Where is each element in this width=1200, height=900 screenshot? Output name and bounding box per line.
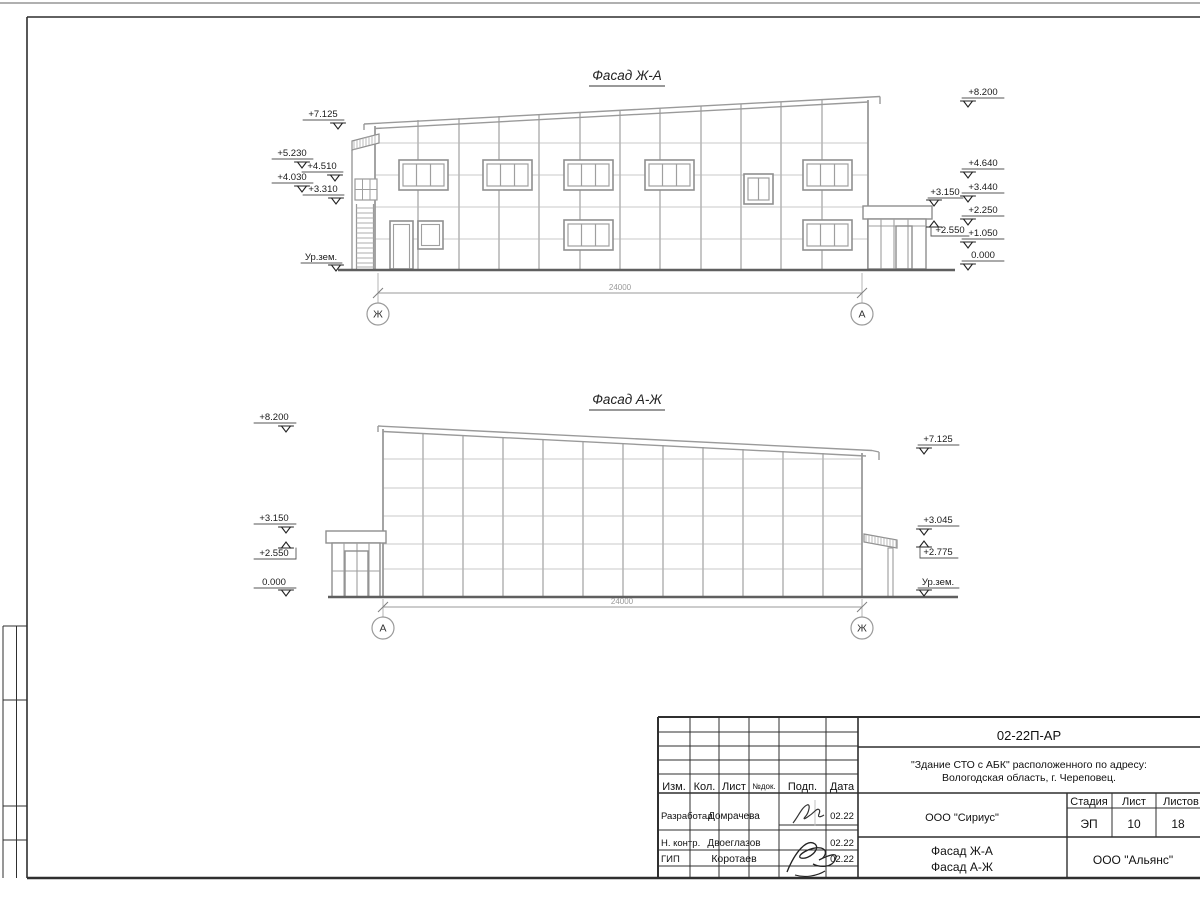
col-podp: Подп. [788, 781, 817, 793]
col-kol: Кол. [694, 781, 716, 793]
col-list: Лист [722, 781, 746, 793]
sheets-label: Листов [1163, 796, 1199, 808]
sheet-title-line2: Фасад А-Ж [931, 860, 993, 874]
row-role-nkontr: Н. контр. [661, 838, 700, 849]
mark-2550: +2.550 [935, 225, 964, 236]
row-name-dvoeglazov: Двоеглазов [707, 838, 760, 849]
facade2-title: Фасад А-Ж [592, 392, 663, 407]
sheet-number: 10 [1127, 817, 1141, 831]
mark-ground-level: Ур.зем. [922, 577, 954, 588]
mark-7125: +7.125 [923, 434, 952, 445]
contractor-company: ООО "Альянс" [1093, 853, 1173, 867]
stage-value: ЭП [1080, 817, 1097, 831]
mark-4030: +4.030 [277, 172, 306, 183]
facade1-dimension: 24000 Ж А [367, 273, 873, 325]
facade1-entrance-vestibule [863, 206, 932, 269]
sheet-title-line1: Фасад Ж-А [931, 844, 993, 858]
facade2-side-canopy [864, 534, 897, 597]
drawing-sheet: Фасад Ж-А [0, 0, 1200, 900]
ladder-rungs [357, 208, 374, 267]
row-name-korotaev: Коротаев [711, 853, 757, 865]
mark-3150: +3.150 [930, 187, 959, 198]
mark-ground-level: Ур.зем. [305, 252, 337, 263]
mark-2550: +2.550 [259, 548, 288, 559]
row-name-domracheva: Домрачева [708, 811, 760, 822]
facade-a-zh: Фасад А-Ж +8.200 [254, 392, 959, 639]
dim-24000: 24000 [611, 597, 634, 606]
signature-gip [787, 843, 836, 872]
col-izm: Изм. [662, 781, 686, 793]
stage-label: Стадия [1070, 796, 1108, 808]
ladder-rails [357, 204, 374, 269]
mark-0000: 0.000 [971, 250, 995, 261]
elevation-marks-right: +8.200 +4.640 +3.440 +2.250 +1.050 0.000 [961, 87, 1005, 270]
sheets-total: 18 [1171, 817, 1185, 831]
object-address-line1: "Здание СТО с АБК" расположенного по адр… [911, 759, 1147, 771]
mark-7125: +7.125 [308, 109, 337, 120]
facade2-entrance-vestibule [326, 531, 386, 597]
axis-label-zh: Ж [373, 309, 383, 321]
sheet-label: Лист [1122, 796, 1146, 808]
mark-3310: +3.310 [308, 184, 337, 195]
mark-3150: +3.150 [259, 513, 288, 524]
facade1-panel-grid [375, 100, 868, 270]
elevation-marks-right: +7.125 +3.045 +2.775 Ур.зем. [917, 434, 960, 596]
mark-8200: +8.200 [259, 412, 288, 423]
col-ndok: №док. [752, 782, 775, 791]
elevation-marks-inner: +3.150 +2.550 [927, 187, 970, 236]
facade2-panel-grid [383, 433, 862, 597]
mark-0000: 0.000 [262, 577, 286, 588]
axis-label-a: А [379, 623, 386, 635]
facade1-title: Фасад Ж-А [592, 68, 662, 83]
row-role-gip: ГИП [661, 854, 680, 865]
axis-label-a: А [858, 309, 865, 321]
elevation-marks-left: +8.200 +3.150 +2.550 0.000 [254, 412, 296, 596]
object-address-line2: Вологодская область, г. Череповец. [942, 772, 1116, 784]
mark-8200: +8.200 [968, 87, 997, 98]
facade-zh-a: Фасад Ж-А [272, 68, 1004, 325]
canopy-post [888, 548, 893, 597]
left-margin-cells [3, 626, 27, 878]
mark-1050: +1.050 [968, 228, 997, 239]
mark-3440: +3.440 [968, 182, 997, 193]
facade2-dimension: 24000 А Ж [372, 597, 873, 639]
title-block: Изм. Кол. Лист №док. Подп. Дата Разработ… [658, 717, 1200, 878]
row-date-gip: 02.22 [830, 854, 854, 865]
mark-4510: +4.510 [307, 161, 336, 172]
axis-label-zh: Ж [857, 623, 867, 635]
signatures [787, 800, 836, 876]
mark-4640: +4.640 [968, 158, 997, 169]
signature-razrabotal [793, 805, 824, 823]
doc-code: 02-22П-АР [997, 728, 1061, 743]
mark-2775: +2.775 [923, 547, 952, 558]
col-data: Дата [830, 781, 855, 793]
facade2-outline [378, 426, 879, 597]
row-date-nkontr: 02.22 [830, 838, 854, 849]
dim-24000: 24000 [609, 283, 632, 292]
designer-company: ООО "Сириус" [925, 812, 999, 824]
mark-3045: +3.045 [923, 515, 952, 526]
row-role-razrabotal: Разработал [661, 811, 713, 822]
mark-2250: +2.250 [968, 205, 997, 216]
mark-5230: +5.230 [277, 148, 306, 159]
drawing-canvas: Фасад Ж-А [0, 0, 1200, 900]
elevation-marks-left: +7.125 +5.230 +4.510 +4.030 +3.310 Ур.зе… [272, 109, 346, 271]
row-date-razrabotal: 02.22 [830, 811, 854, 822]
